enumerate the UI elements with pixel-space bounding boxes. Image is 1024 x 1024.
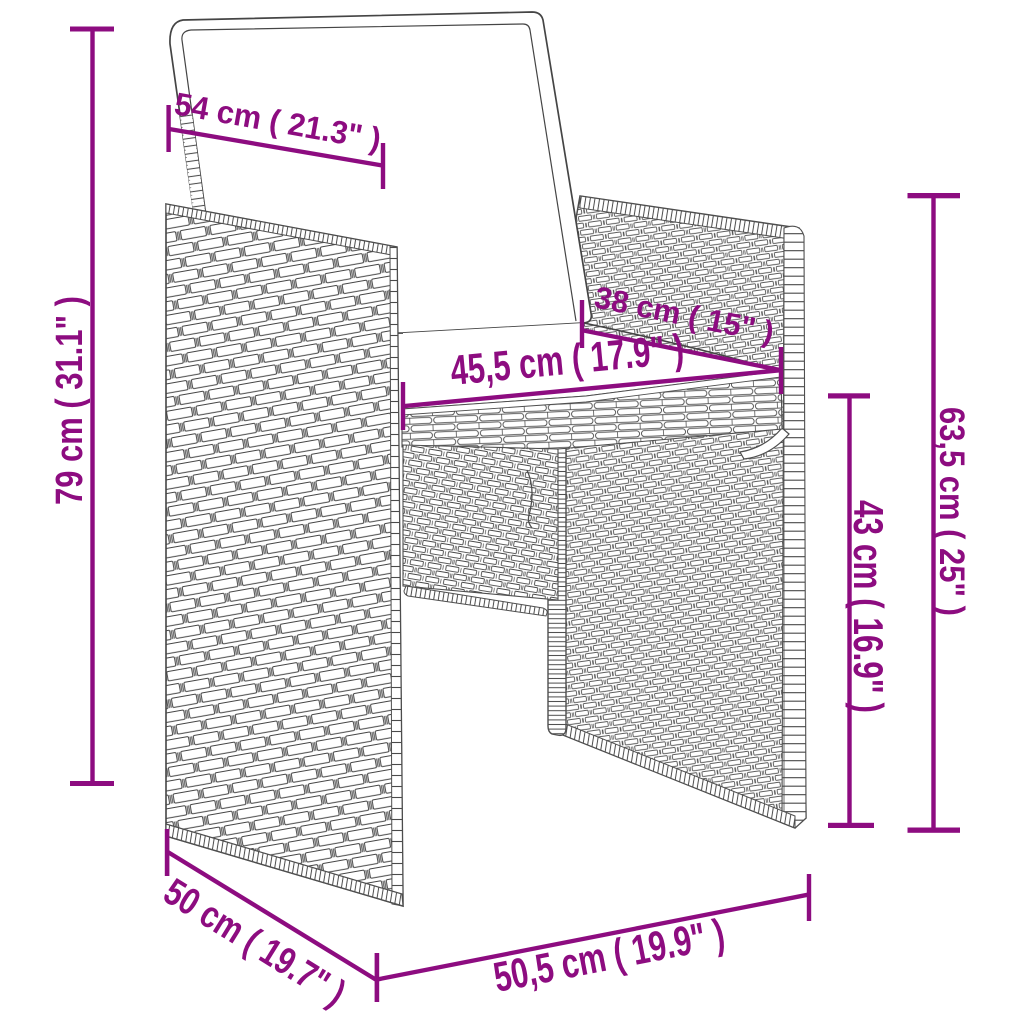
- svg-text:79 cm ( 31.1" ): 79 cm ( 31.1" ): [49, 296, 91, 505]
- svg-text:43 cm ( 16.9" ): 43 cm ( 16.9" ): [845, 500, 892, 713]
- svg-text:63,5 cm ( 25" ): 63,5 cm ( 25" ): [932, 407, 971, 616]
